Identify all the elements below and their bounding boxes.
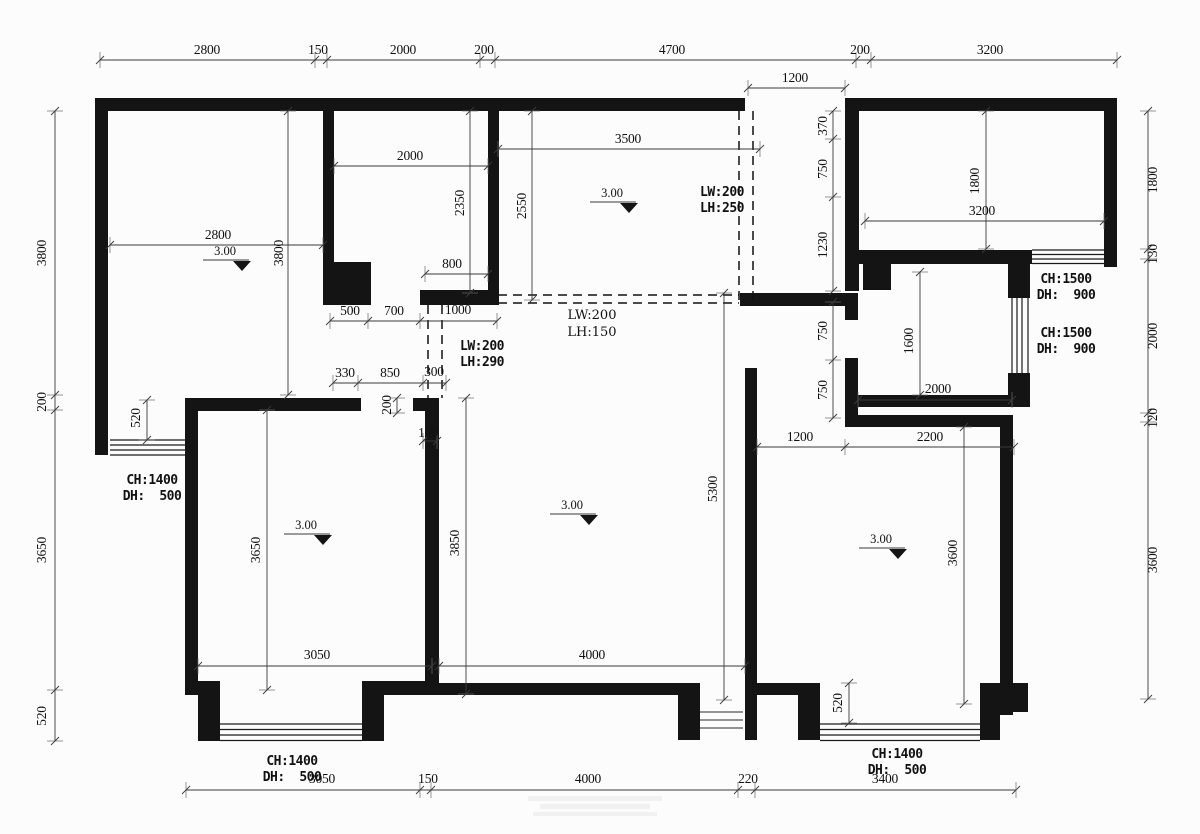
dimension-label: 3850 (447, 529, 462, 556)
dimension-label: 370 (815, 116, 830, 136)
watermark (528, 796, 662, 816)
annotation-label: LH:150 (567, 325, 616, 340)
dimension-label: 150 (308, 42, 328, 57)
wall-segment (798, 683, 820, 740)
level-marker-value: 3.00 (561, 498, 583, 512)
level-marker: 3.00 (550, 498, 598, 525)
level-markers-layer: 3.003.003.003.003.00 (203, 186, 907, 559)
annotation-label: LW:200 (700, 185, 745, 200)
wall-segment (845, 98, 1117, 111)
level-marker-triangle-icon (233, 261, 251, 271)
window-symbol (1032, 250, 1104, 264)
level-marker-triangle-icon (314, 535, 332, 545)
dimension-label: 330 (335, 365, 355, 380)
dimension-label: 5300 (705, 475, 720, 502)
wall-segment (845, 111, 859, 291)
window-symbol (1012, 298, 1028, 373)
wall-segment (1000, 415, 1013, 715)
wall-segment (95, 98, 108, 455)
dimension-label: 750 (815, 159, 830, 179)
level-marker-triangle-icon (620, 203, 638, 213)
wall-segment (745, 368, 757, 740)
annotation-label: CH:1500 (1040, 326, 1092, 341)
dimension-label: 2800 (205, 227, 232, 242)
wall-segment (1008, 373, 1030, 407)
wall-segment (1104, 111, 1117, 267)
level-marker-value: 3.00 (870, 532, 892, 546)
dimension-label: 200 (474, 42, 494, 57)
dimension-label: 3650 (248, 536, 263, 563)
dimension-label: 200 (850, 42, 870, 57)
dimension-label: 1800 (1145, 166, 1160, 193)
dimension-label: 1600 (901, 327, 916, 354)
dimension-label: 800 (442, 256, 462, 271)
level-marker: 3.00 (859, 532, 907, 559)
wall-segment (488, 111, 499, 305)
dimension-label: 1200 (782, 70, 809, 85)
entry-step-lines (700, 712, 743, 728)
dimension-label: 3200 (969, 203, 996, 218)
annotation-label: LH:250 (700, 201, 745, 216)
level-marker: 3.00 (284, 518, 332, 545)
dimension-label: 130 (1145, 244, 1160, 264)
level-marker-value: 3.00 (601, 186, 623, 200)
level-marker-triangle-icon (889, 549, 907, 559)
wall-segment (362, 681, 384, 741)
annotation-label: LW:200 (568, 308, 617, 323)
dimension-label: 3800 (34, 239, 49, 266)
dimension-label: 2800 (194, 42, 221, 57)
wall-segment (185, 398, 198, 693)
window-symbol (220, 724, 362, 741)
dimension-label: 200 (34, 392, 49, 412)
annotation-label: CH:1500 (1040, 272, 1092, 287)
dimension-label: 3050 (304, 647, 331, 662)
dimension-label: 120 (1145, 408, 1160, 428)
dimension-label: 2000 (397, 148, 424, 163)
dimension-label: 3650 (34, 536, 49, 563)
dimension-label: 1200 (787, 429, 814, 444)
dimension-label: 3600 (1145, 546, 1160, 573)
wall-segment (439, 683, 679, 695)
dimension-label: 2350 (452, 189, 467, 216)
annotation-label: LH:290 (460, 355, 505, 370)
dimension-label: 700 (384, 303, 404, 318)
dimension-label: 4000 (575, 771, 602, 786)
annotation-label: DH: 900 (1037, 342, 1096, 357)
level-marker: 3.00 (203, 244, 251, 271)
annotation-label: DH: 500 (263, 770, 322, 785)
dimension-label: 1800 (967, 167, 982, 194)
dimension-label: 100 (418, 425, 438, 440)
wall-segment (845, 293, 858, 320)
dimension-label: 200 (379, 395, 394, 415)
windows-layer (110, 250, 1104, 741)
wall-segment (185, 398, 361, 411)
dimension-label: 3800 (271, 239, 286, 266)
wall-segment (95, 98, 745, 111)
dimension-label: 850 (380, 365, 400, 380)
dimension-label: 750 (815, 380, 830, 400)
level-marker-triangle-icon (580, 515, 598, 525)
window-symbol (110, 440, 186, 455)
dimension-label: 1230 (815, 231, 830, 258)
dimension-label: 2000 (925, 381, 952, 396)
annotation-label: CH:1400 (126, 473, 178, 488)
wall-segment (980, 683, 1000, 740)
window-symbol (820, 724, 980, 741)
dimension-label: 1000 (445, 302, 472, 317)
annotation-label: LW:200 (460, 339, 505, 354)
floor-plan-canvas: 2800150200020047002003200120038002003650… (0, 0, 1200, 834)
floor-plan-drawing: 2800150200020047002003200120038002003650… (0, 0, 1200, 834)
wall-segment (863, 262, 891, 290)
dimension-label: 2550 (514, 192, 529, 219)
dimension-label: 520 (830, 693, 845, 713)
wall-segment (845, 395, 1012, 407)
wall-segment (857, 250, 1032, 264)
wall-segment (198, 681, 220, 741)
dimension-label: 150 (418, 771, 438, 786)
level-marker-value: 3.00 (214, 244, 236, 258)
dimension-label: 4700 (659, 42, 686, 57)
annotation-label: DH: 900 (1037, 288, 1096, 303)
dimension-label: 3200 (977, 42, 1004, 57)
dimension-label: 2200 (917, 429, 944, 444)
wall-segment (384, 681, 439, 695)
wall-segment (1008, 258, 1030, 298)
dimension-label: 2000 (390, 42, 417, 57)
dimension-label: 2000 (1145, 322, 1160, 349)
dimension-label: 520 (34, 706, 49, 726)
dimension-label: 3500 (615, 131, 642, 146)
wall-segment (740, 293, 858, 306)
dimension-label: 3600 (945, 539, 960, 566)
annotation-label: CH:1400 (266, 754, 318, 769)
annotation-label: DH: 500 (123, 489, 182, 504)
dimension-label: 520 (128, 408, 143, 428)
labels-layer: 2800150200020047002003200120038002003650… (34, 42, 1160, 786)
level-marker: 3.00 (590, 186, 638, 213)
dimension-label: 300 (424, 364, 444, 379)
annotation-label: CH:1400 (871, 747, 923, 762)
dimension-label: 4000 (579, 647, 606, 662)
level-marker-value: 3.00 (295, 518, 317, 532)
annotation-label: DH: 500 (868, 763, 927, 778)
dimension-label: 750 (815, 321, 830, 341)
wall-segment (678, 683, 700, 740)
wall-segment (845, 415, 1012, 427)
dimension-label: 220 (738, 771, 758, 786)
wall-segment (845, 358, 858, 418)
dimension-label: 500 (340, 303, 360, 318)
